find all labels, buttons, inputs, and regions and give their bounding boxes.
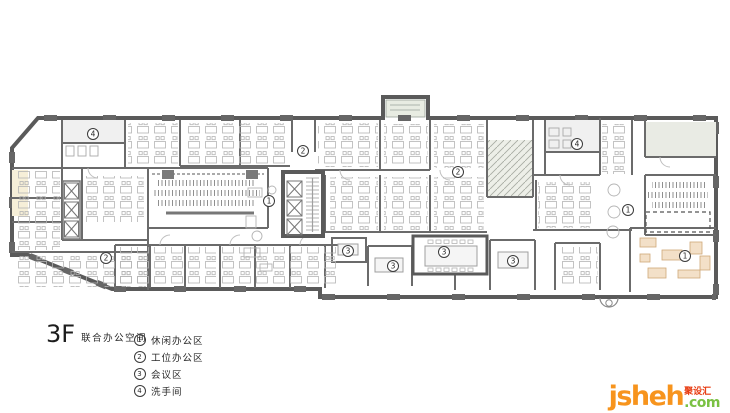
svg-text:3: 3 xyxy=(391,262,396,271)
legend-number-circle: 3 xyxy=(134,368,146,380)
floor-plan-drawing: 422412333311 xyxy=(0,0,730,413)
area-label: 1 xyxy=(623,205,634,216)
legend: 1休闲办公区2工位办公区3会议区4洗手间 xyxy=(134,333,204,398)
floor-plan-page: 422412333311 3F 联合办公空间 1休闲办公区2工位办公区3会议区4… xyxy=(0,0,730,413)
logo-brand-text: jsheh xyxy=(609,383,684,410)
large-room-top-right xyxy=(645,122,716,157)
legend-number-circle: 4 xyxy=(134,385,146,397)
legend-label: 洗手间 xyxy=(151,384,183,398)
floor-number: 3F xyxy=(46,322,75,346)
title-block: 3F 联合办公空间 xyxy=(46,322,147,346)
legend-label: 工位办公区 xyxy=(151,350,204,364)
svg-text:2: 2 xyxy=(301,147,306,156)
svg-text:1: 1 xyxy=(267,197,272,206)
legend-number-circle: 1 xyxy=(134,334,146,346)
svg-text:2: 2 xyxy=(456,168,461,177)
legend-item: 2工位办公区 xyxy=(134,350,204,364)
legend-label: 会议区 xyxy=(151,367,183,381)
area-label: 3 xyxy=(388,261,399,272)
area-label: 3 xyxy=(508,256,519,267)
svg-text:3: 3 xyxy=(442,248,447,257)
legend-number-circle: 2 xyxy=(134,351,146,363)
area-label: 4 xyxy=(572,139,583,150)
jsheh-logo: jsheh 聚设汇 .com xyxy=(609,383,720,410)
legend-label: 休闲办公区 xyxy=(151,333,204,347)
area-label: 4 xyxy=(88,129,99,140)
legend-item: 4洗手间 xyxy=(134,384,204,398)
svg-text:3: 3 xyxy=(346,247,351,256)
roof-bumpout xyxy=(386,100,425,117)
svg-text:4: 4 xyxy=(91,130,96,139)
svg-text:1: 1 xyxy=(683,252,688,261)
area-label: 1 xyxy=(680,251,691,262)
logo-tld-text: .com xyxy=(684,396,720,410)
legend-item: 3会议区 xyxy=(134,367,204,381)
legend-item: 1休闲办公区 xyxy=(134,333,204,347)
area-label: 2 xyxy=(298,146,309,157)
area-label: 2 xyxy=(453,167,464,178)
svg-text:2: 2 xyxy=(104,254,109,263)
svg-text:1: 1 xyxy=(626,206,631,215)
area-label: 3 xyxy=(343,246,354,257)
area-label: 2 xyxy=(101,253,112,264)
svg-text:4: 4 xyxy=(575,140,580,149)
area-label: 1 xyxy=(264,196,275,207)
svg-text:3: 3 xyxy=(511,257,516,266)
central-core xyxy=(283,172,323,236)
area-label: 3 xyxy=(439,247,450,258)
